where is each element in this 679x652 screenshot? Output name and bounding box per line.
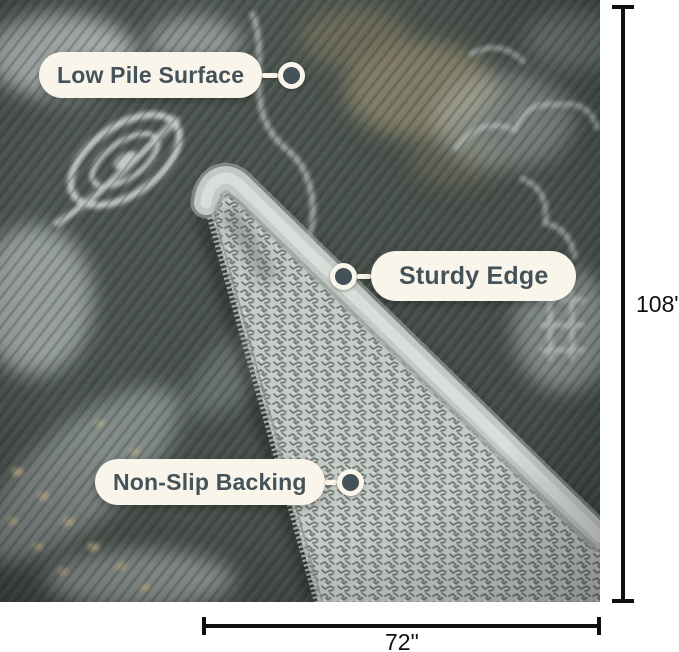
callout-label: Non-Slip Backing <box>113 469 307 496</box>
callout-low-pile-surface: Low Pile Surface <box>39 52 305 98</box>
dimension-bar <box>621 5 625 603</box>
callout-connector <box>262 73 278 78</box>
callout-dot <box>337 469 364 496</box>
callout-connector <box>357 274 371 279</box>
callout-pill: Non-Slip Backing <box>95 459 325 505</box>
callout-label: Low Pile Surface <box>57 62 244 89</box>
dimension-cap <box>597 617 601 635</box>
height-dimension-line <box>612 5 634 603</box>
callout-connector <box>325 480 337 485</box>
callout-label: Sturdy Edge <box>399 262 548 291</box>
product-infographic: Low Pile Surface Sturdy Edge Non-Slip Ba… <box>0 0 679 652</box>
callout-dot <box>278 62 305 89</box>
callout-non-slip-backing: Non-Slip Backing <box>95 459 364 505</box>
callout-pill: Low Pile Surface <box>39 52 262 98</box>
width-dimension-label: 72" <box>385 629 419 652</box>
dimension-bar <box>202 624 601 628</box>
callout-sturdy-edge: Sturdy Edge <box>330 251 576 301</box>
height-dimension-label: 108" <box>636 291 679 318</box>
callout-dot <box>330 263 357 290</box>
dimension-cap <box>612 599 634 603</box>
callout-pill: Sturdy Edge <box>371 251 576 301</box>
